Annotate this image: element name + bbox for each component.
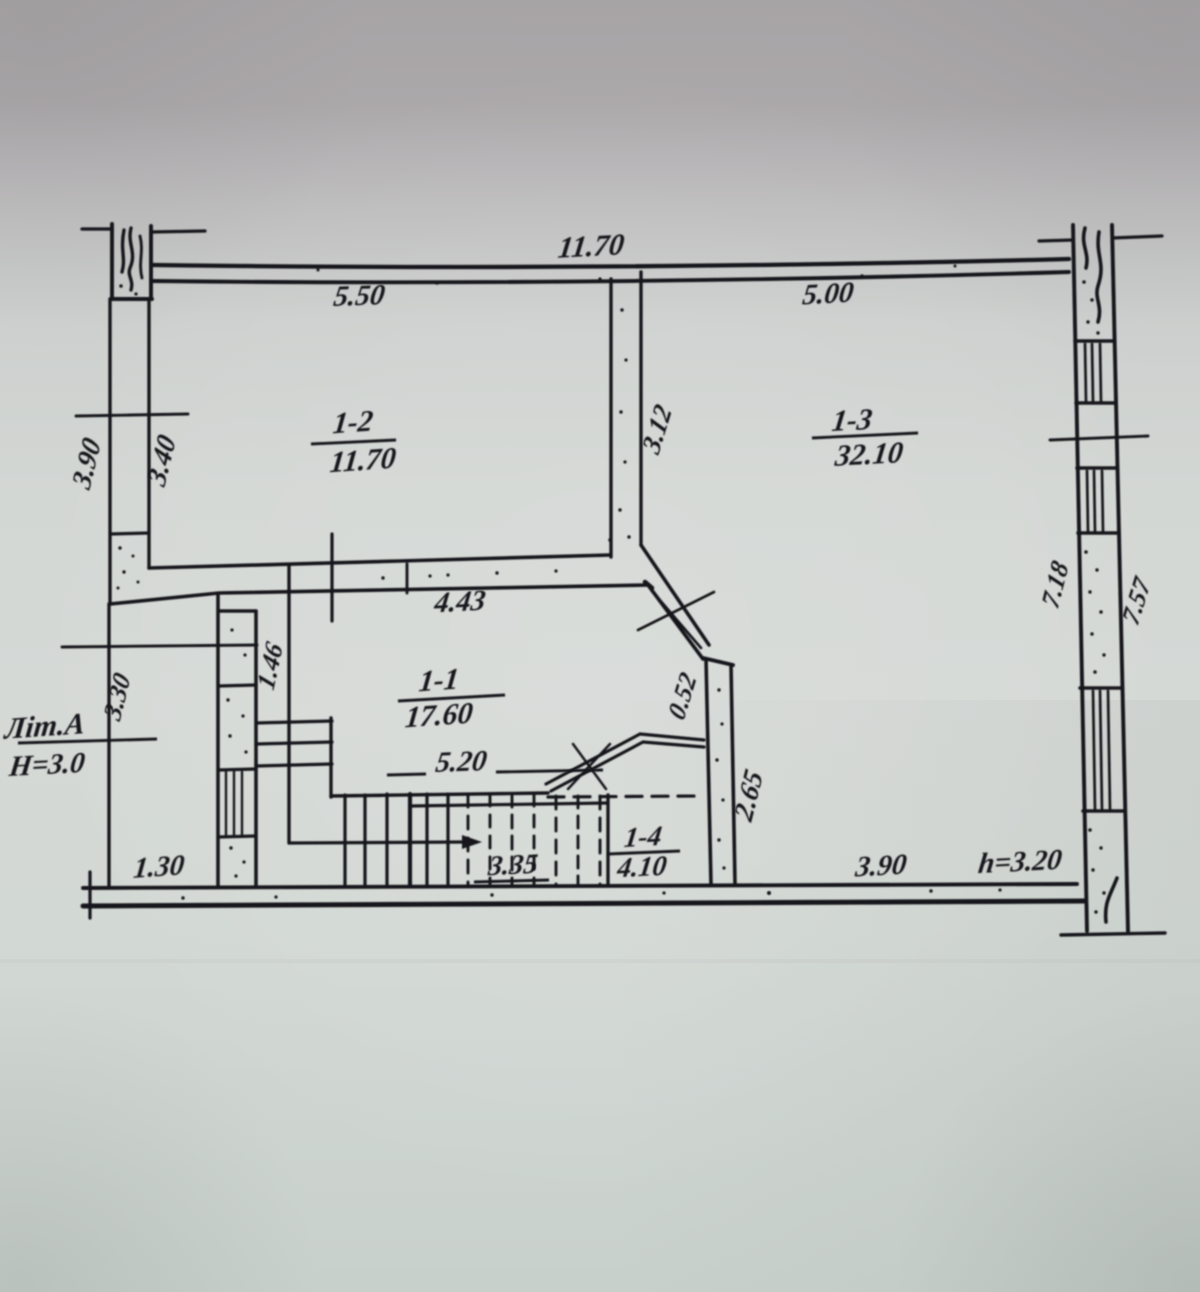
- svg-text:1-3: 1-3: [830, 402, 874, 438]
- svg-text:17.60: 17.60: [404, 696, 475, 735]
- svg-text:3.35: 3.35: [486, 849, 540, 883]
- svg-text:11.70: 11.70: [328, 441, 397, 480]
- svg-text:1-4: 1-4: [623, 821, 664, 854]
- svg-text:1-1: 1-1: [417, 662, 460, 699]
- svg-text:1-2: 1-2: [331, 404, 374, 441]
- svg-text:3.90: 3.90: [853, 849, 909, 884]
- svg-text:32.10: 32.10: [832, 435, 905, 473]
- svg-text:5.50: 5.50: [332, 279, 388, 313]
- svg-text:4.10: 4.10: [615, 851, 669, 885]
- svg-text:5.00: 5.00: [801, 277, 856, 312]
- svg-text:Н=3.0: Н=3.0: [7, 747, 88, 783]
- svg-text:1.30: 1.30: [132, 849, 186, 885]
- svg-text:5.20: 5.20: [434, 745, 490, 779]
- svg-text:4.43: 4.43: [432, 585, 488, 620]
- svg-text:11.70: 11.70: [556, 227, 626, 264]
- svg-text:h=3.20: h=3.20: [976, 844, 1064, 880]
